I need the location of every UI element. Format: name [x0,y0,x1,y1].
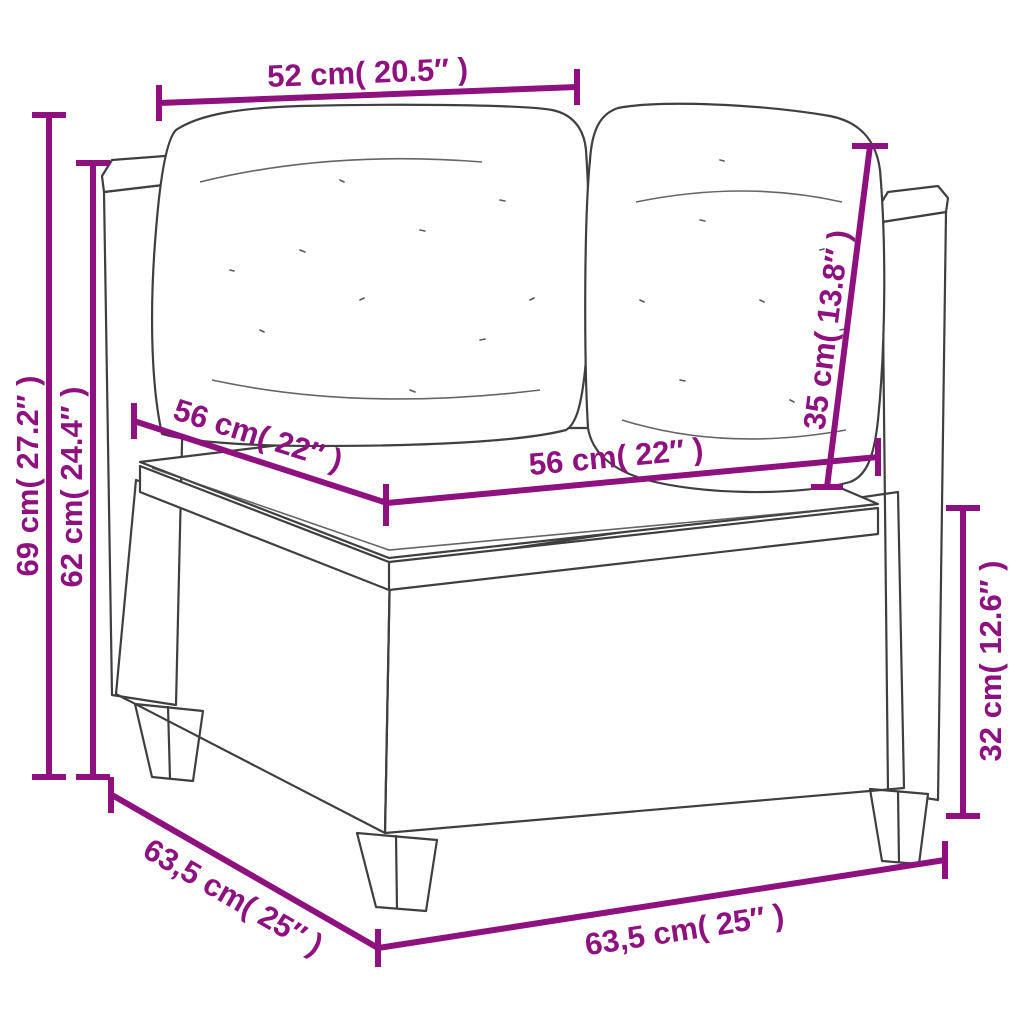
front-leg-edge [396,835,397,909]
dim-armrest-height-label: 62 cm( 24.4″ ) [54,387,89,588]
dim-overall-depth-label: 63,5 cm( 25″ ) [137,832,329,963]
sofa-drawing [102,104,948,911]
dim-total-height-label: 69 cm( 27.2″ ) [10,376,45,577]
dim-base-height: 32 cm( 12.6″ ) [946,508,1008,816]
right-leg-edge [898,791,899,863]
dim-top-width-label: 52 cm( 20.5″ ) [267,51,469,94]
right-post-panel [882,212,946,800]
dim-base-height-label: 32 cm( 12.6″ ) [973,561,1008,762]
diagram-canvas: 52 cm( 20.5″ ) 69 cm( 27.2″ ) 62 cm( 24.… [0,0,1024,1024]
dim-armrest-height: 62 cm( 24.4″ ) [54,163,110,777]
back-cushion-left-outline [152,105,590,446]
product-dimension-diagram: 52 cm( 20.5″ ) 69 cm( 27.2″ ) 62 cm( 24.… [0,0,1024,1024]
dim-overall-width-label: 63,5 cm( 25″ ) [582,897,786,962]
back-cushion-left [152,105,590,446]
dim-overall-width: 63,5 cm( 25″ ) [378,841,945,967]
right-post-cap [878,186,948,222]
dim-overall-depth: 63,5 cm( 25″ ) [111,777,378,962]
